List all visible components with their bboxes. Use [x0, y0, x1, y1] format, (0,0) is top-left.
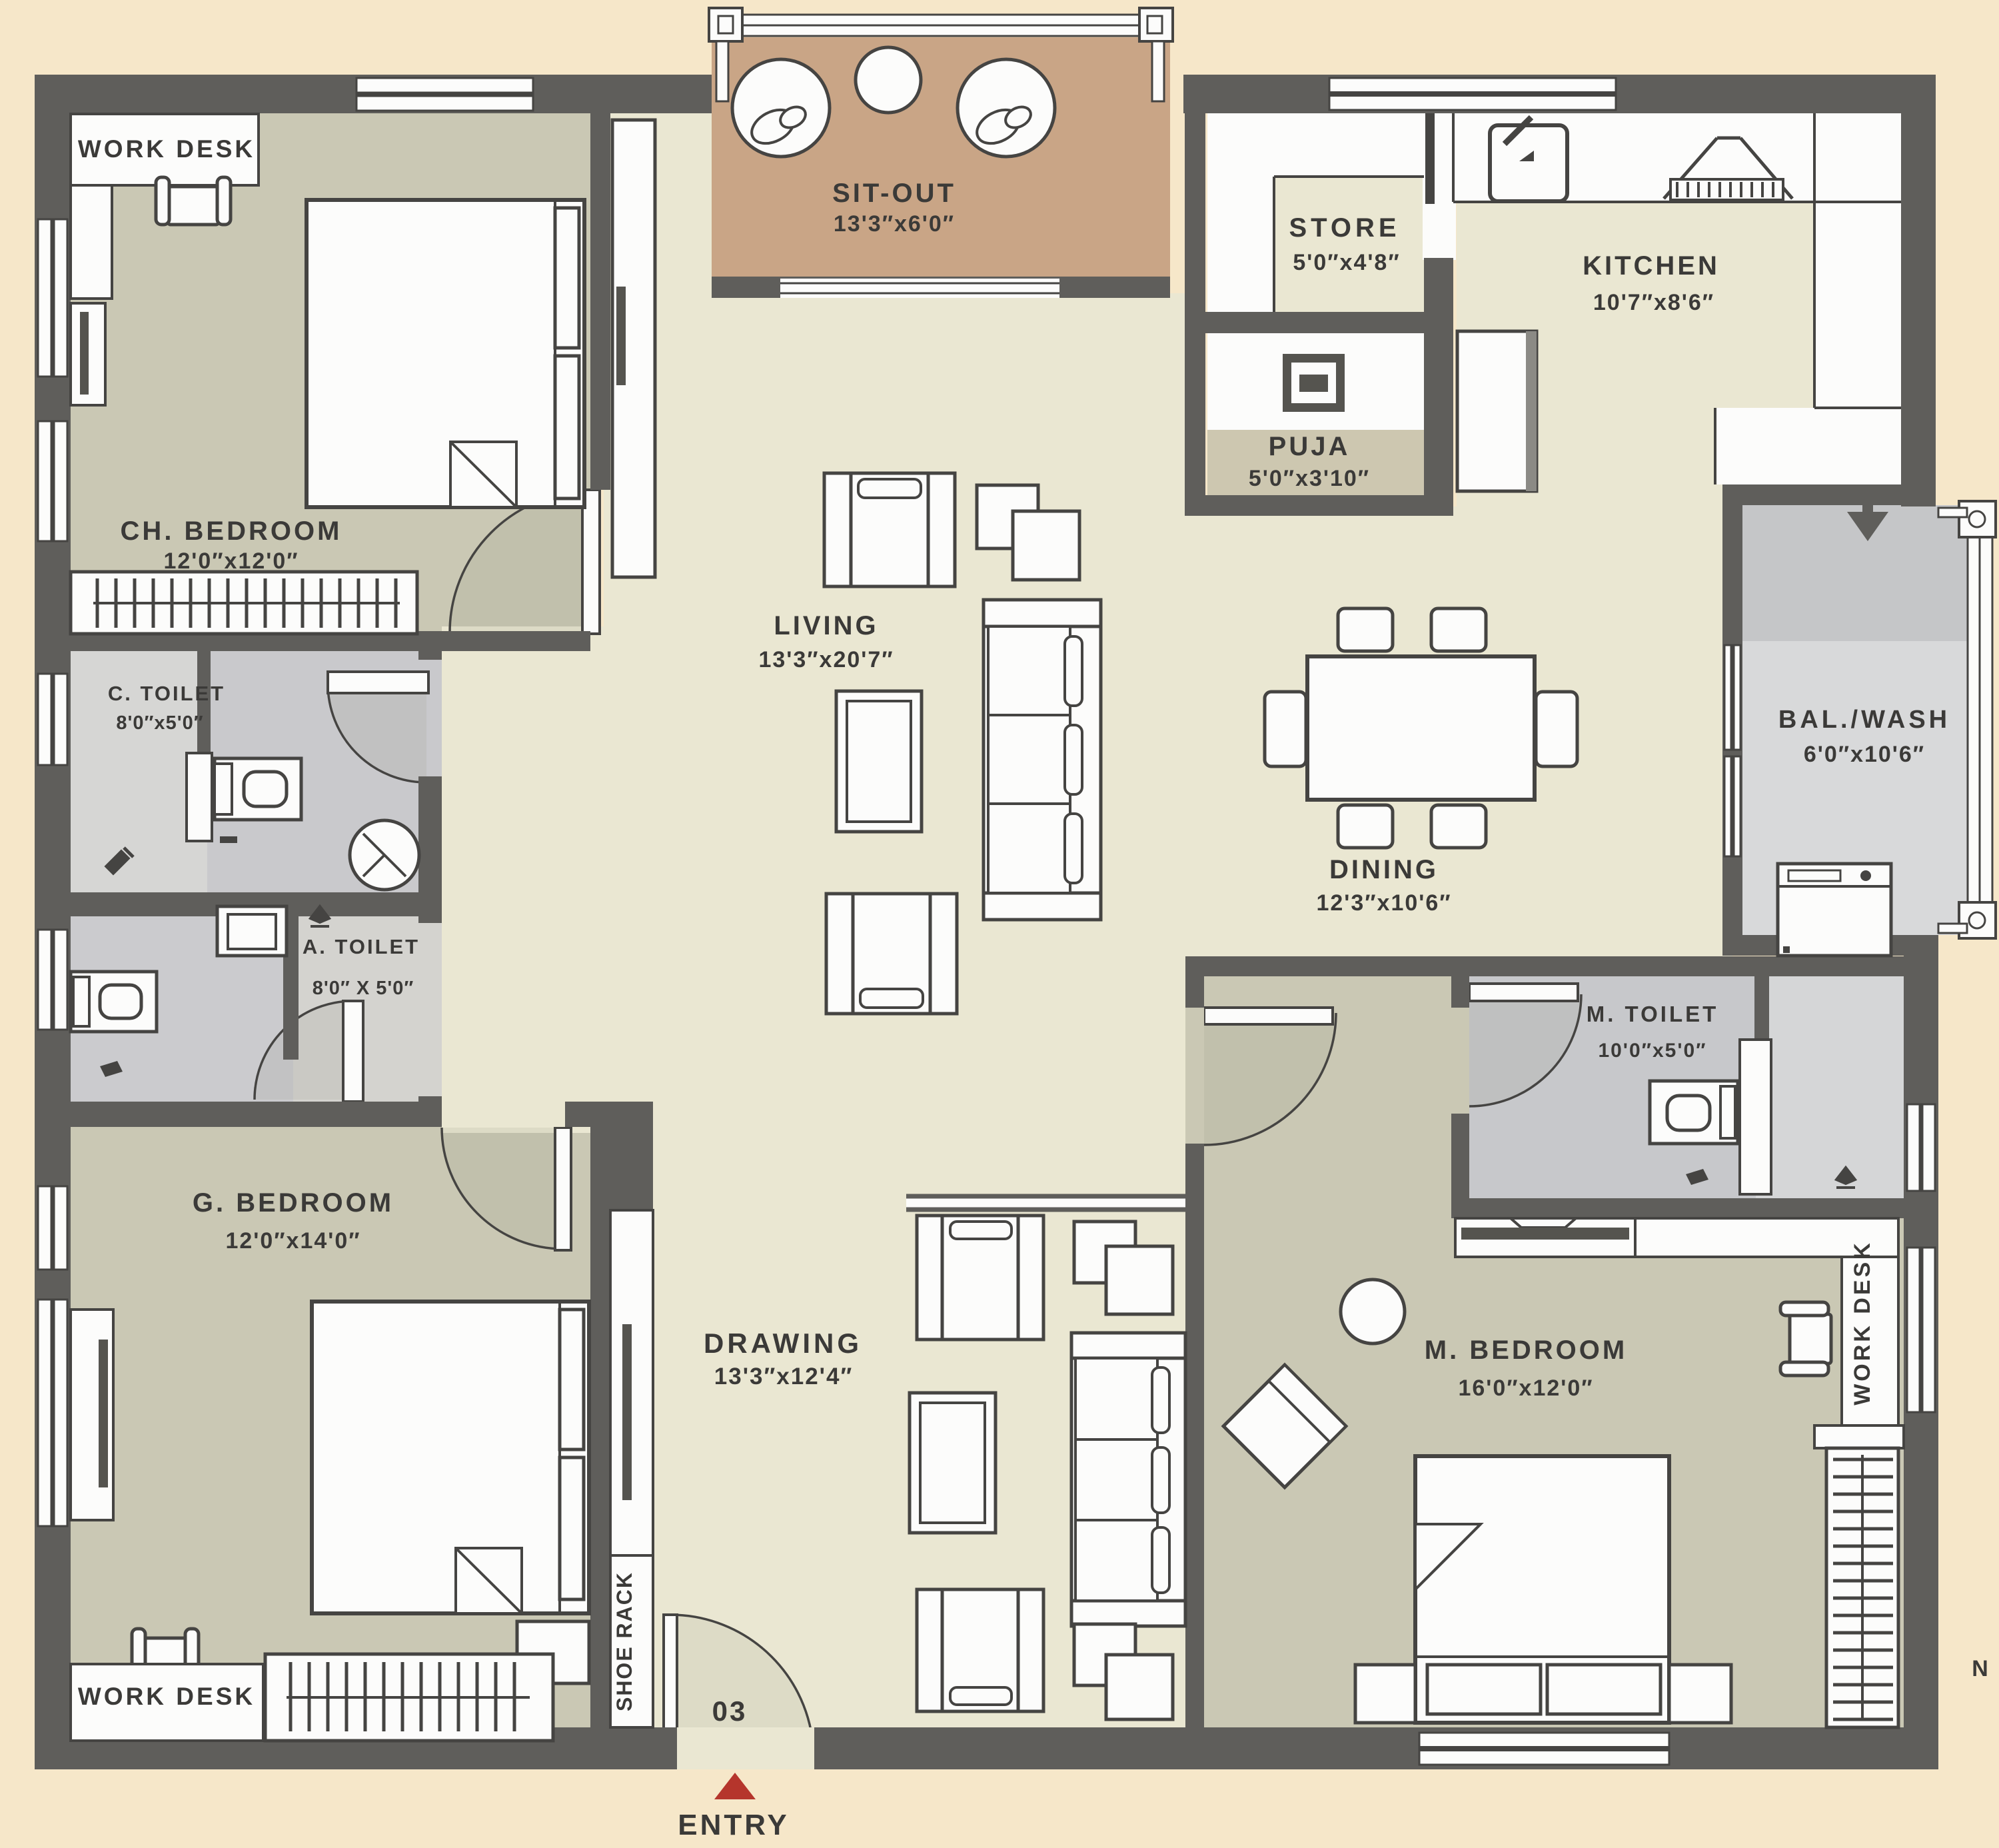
- svg-text:CH. BEDROOM: CH. BEDROOM: [121, 516, 342, 546]
- svg-text:SIT-OUT: SIT-OUT: [832, 179, 956, 208]
- svg-text:N: N: [1972, 1656, 1989, 1681]
- svg-text:PUJA: PUJA: [1269, 432, 1351, 461]
- svg-text:03: 03: [712, 1695, 748, 1727]
- svg-text:M. TOILET: M. TOILET: [1587, 1002, 1719, 1026]
- svg-text:16'0″x12'0″: 16'0″x12'0″: [1458, 1376, 1593, 1401]
- svg-text:G. BEDROOM: G. BEDROOM: [193, 1188, 394, 1218]
- svg-text:BAL./WASH: BAL./WASH: [1778, 706, 1950, 734]
- svg-text:A. TOILET: A. TOILET: [303, 935, 420, 958]
- svg-text:5'0″x4'8″: 5'0″x4'8″: [1293, 250, 1400, 275]
- svg-text:WORK DESK: WORK DESK: [78, 135, 255, 163]
- svg-text:M. BEDROOM: M. BEDROOM: [1425, 1336, 1627, 1365]
- svg-text:13'3″x6'0″: 13'3″x6'0″: [834, 211, 955, 237]
- svg-text:10'7″x8'6″: 10'7″x8'6″: [1593, 290, 1714, 315]
- svg-text:6'0″x10'6″: 6'0″x10'6″: [1804, 742, 1925, 767]
- svg-text:SHOE RACK: SHOE RACK: [612, 1571, 636, 1711]
- svg-text:8'0″ X 5'0″: 8'0″ X 5'0″: [313, 978, 414, 999]
- svg-text:ENTRY: ENTRY: [678, 1809, 790, 1841]
- svg-text:LIVING: LIVING: [774, 611, 878, 640]
- svg-text:12'0″x14'0″: 12'0″x14'0″: [225, 1228, 360, 1254]
- svg-text:C. TOILET: C. TOILET: [108, 682, 225, 705]
- svg-text:13'3″x20'7″: 13'3″x20'7″: [758, 647, 894, 672]
- svg-text:STORE: STORE: [1289, 213, 1400, 243]
- svg-text:5'0″x3'10″: 5'0″x3'10″: [1249, 466, 1370, 491]
- svg-text:8'0″x5'0″: 8'0″x5'0″: [116, 712, 203, 734]
- svg-text:13'3″x12'4″: 13'3″x12'4″: [714, 1364, 853, 1389]
- svg-text:DRAWING: DRAWING: [704, 1328, 862, 1359]
- svg-text:12'0″x12'0″: 12'0″x12'0″: [163, 548, 299, 574]
- svg-text:12'3″x10'6″: 12'3″x10'6″: [1316, 890, 1451, 916]
- svg-text:WORK DESK: WORK DESK: [1850, 1240, 1875, 1405]
- svg-text:WORK DESK: WORK DESK: [78, 1683, 255, 1710]
- svg-text:KITCHEN: KITCHEN: [1583, 251, 1720, 281]
- svg-text:10'0″x5'0″: 10'0″x5'0″: [1598, 1040, 1706, 1062]
- svg-text:DINING: DINING: [1329, 855, 1439, 884]
